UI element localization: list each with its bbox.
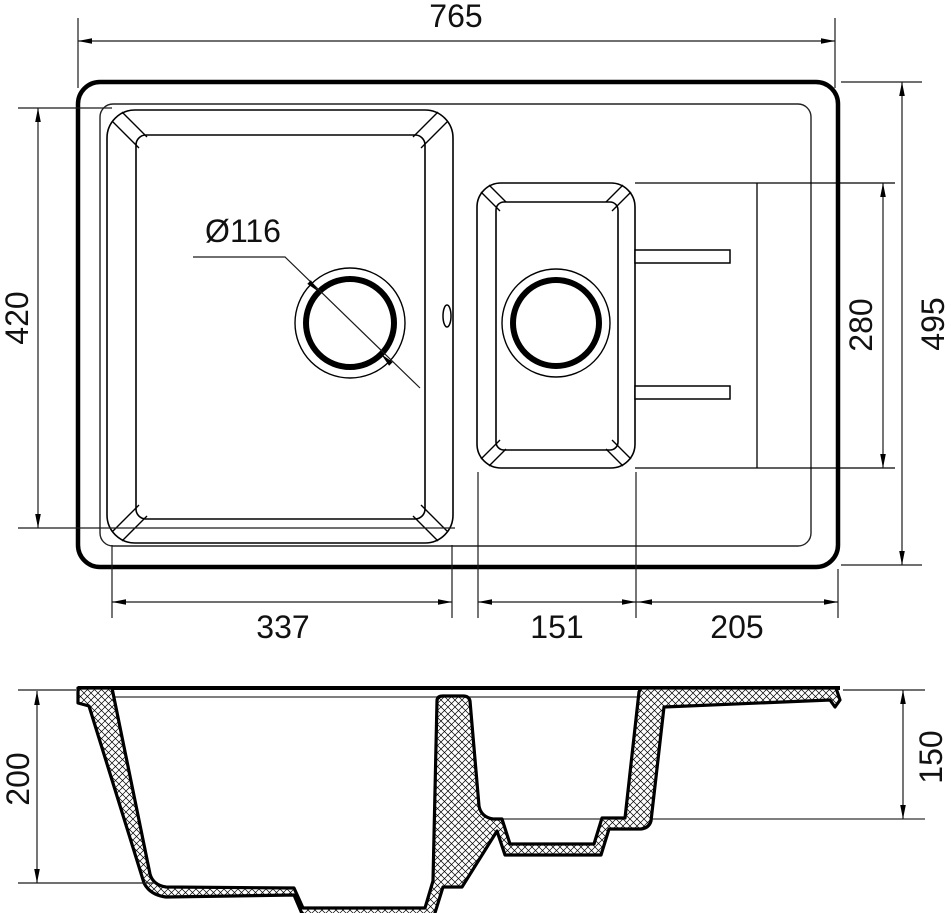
section-view [18,688,925,913]
top-view [18,18,922,618]
main-bowl-corner-bevels [112,112,448,541]
top-view-dimensions [18,18,922,618]
section-material [78,688,840,913]
sink-technical-drawing: 765 420 495 280 337 151 205 Ø116 200 150 [0,0,951,913]
dim-small-bowl-depth-label: 150 [915,730,947,783]
small-bowl [477,183,635,468]
dim-small-bowl-length-label: 280 [845,298,877,351]
dim-main-bowl-width-label: 337 [256,611,309,643]
small-drain-recess [502,269,610,377]
dim-small-bowl-width-label: 151 [530,611,583,643]
dim-overall-depth-label: 495 [917,297,949,350]
dim-overall-width-label: 765 [429,0,482,32]
overflow-hole [443,305,451,327]
main-drain-hole [306,279,394,367]
dim-main-bowl-length-label: 420 [1,291,33,344]
drainer-rib [635,250,730,263]
arrowheads [35,38,905,605]
small-bowl-corner-bevels [481,185,631,466]
main-bowl [107,110,453,543]
dim-main-bowl-depth-label: 200 [2,752,34,805]
dim-drainer-width-label: 205 [710,611,763,643]
sink-inner-rim [100,104,811,546]
drawing-linework [0,0,951,913]
drain-diameter-label: Ø116 [205,215,281,247]
small-drain-hole [513,280,599,366]
drainer-rib [635,386,730,399]
sink-outline [78,82,838,567]
